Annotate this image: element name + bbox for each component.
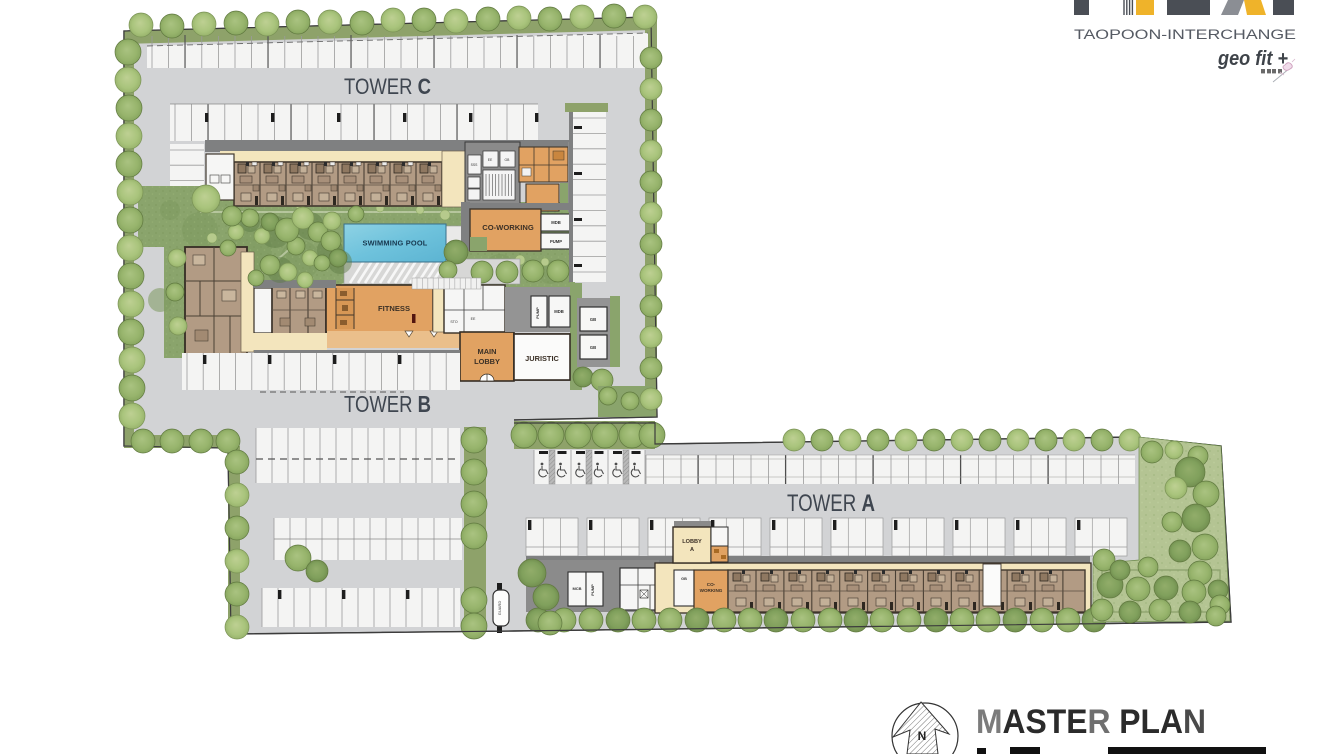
svg-text:MDB: MDB (551, 220, 561, 225)
svg-text:CO-: CO- (707, 582, 716, 587)
svg-text:GB: GB (505, 158, 511, 162)
svg-text:GUARD: GUARD (497, 601, 502, 616)
svg-text:CO-WORKING: CO-WORKING (482, 223, 534, 232)
svg-text:MCB: MCB (572, 586, 581, 591)
svg-text:A: A (690, 547, 694, 553)
svg-text:GB: GB (590, 317, 596, 322)
svg-text:PUMP: PUMP (535, 307, 540, 319)
svg-text:GB: GB (590, 345, 596, 350)
svg-text:STO: STO (450, 320, 458, 324)
svg-text:EE: EE (471, 317, 476, 321)
svg-text:N: N (918, 729, 927, 743)
svg-text:GB: GB (681, 577, 687, 581)
svg-text:PUMP: PUMP (590, 584, 595, 596)
svg-text:WORKING: WORKING (700, 588, 723, 593)
svg-text:TOWER A: TOWER A (787, 490, 875, 517)
svg-text:TOWER C: TOWER C (344, 74, 431, 99)
svg-text:EE: EE (488, 158, 493, 162)
svg-text:LOBBY: LOBBY (682, 539, 702, 545)
svg-text:JURISTIC: JURISTIC (525, 354, 559, 363)
svg-text:SWIMMING POOL: SWIMMING POOL (362, 239, 427, 248)
svg-text:TAOPOON-INTERCHANGE: TAOPOON-INTERCHANGE (1074, 27, 1296, 42)
svg-text:MDB: MDB (554, 309, 564, 314)
svg-text:TOWER B: TOWER B (344, 391, 431, 417)
svg-text:geo fit +: geo fit + (1217, 48, 1288, 70)
svg-text:SSS: SSS (471, 163, 479, 167)
svg-text:FITNESS: FITNESS (378, 304, 410, 313)
svg-text:PUMP: PUMP (550, 239, 562, 244)
svg-text:MASTER PLAN: MASTER PLAN (976, 703, 1206, 741)
svg-text:MAIN: MAIN (478, 347, 497, 356)
svg-text:LOBBY: LOBBY (474, 357, 500, 366)
